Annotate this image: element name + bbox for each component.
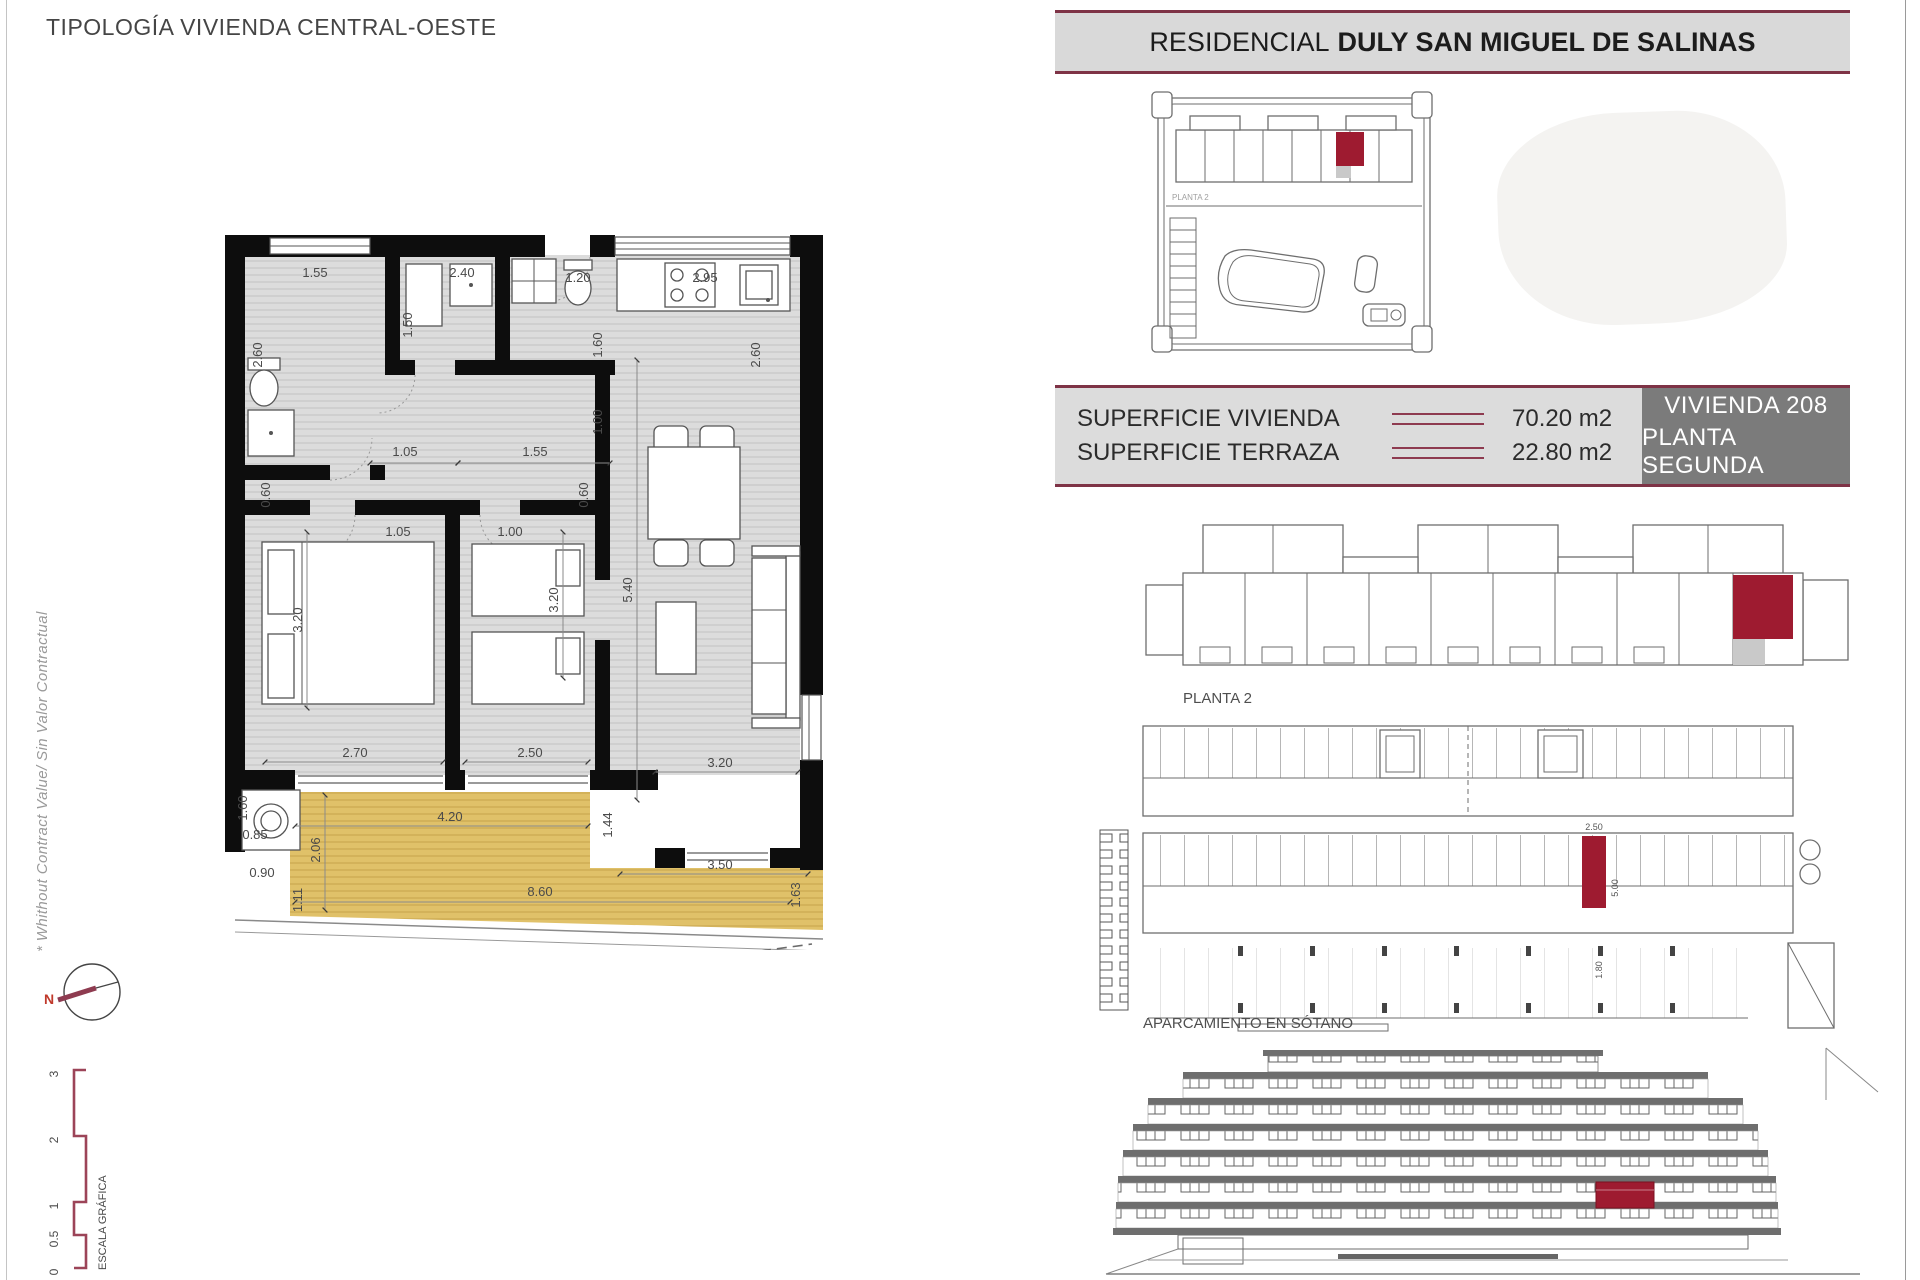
dim-label: 1.50 — [400, 312, 415, 337]
floorplan-drawing: 1.552.401.202.952.601.501.601.002.601.05… — [150, 160, 850, 950]
page-right-edge — [1905, 0, 1906, 1280]
surface-table: SUPERFICIE VIVIENDA 70.20 m2 SUPERFICIE … — [1055, 385, 1850, 487]
dim-label: 1.60 — [235, 795, 250, 820]
dim-label: 2.70 — [342, 745, 367, 760]
dim-label: 2.06 — [308, 837, 323, 862]
surface-terraza-value: 22.80 m2 — [1512, 439, 1642, 467]
page: TIPOLOGÍA VIVIENDA CENTRAL-OESTE — [0, 0, 1920, 1280]
table-row: SUPERFICIE TERRAZA 22.80 m2 — [1077, 439, 1642, 467]
erased-logo-area — [1494, 107, 1789, 329]
dim-label: 5.40 — [620, 577, 635, 602]
table-row: SUPERFICIE VIVIENDA 70.20 m2 — [1077, 405, 1642, 433]
dim-label: 3 — [47, 1070, 61, 1077]
coffee-table — [656, 602, 696, 674]
parking-label: APARCAMIENTO EN SÓTANO — [1143, 1015, 1353, 1032]
dim-label: 1.05 — [392, 444, 417, 459]
dim-label: 0.60 — [576, 482, 591, 507]
dim-label: 1.55 — [522, 444, 547, 459]
dim-label: 1.00 — [590, 409, 605, 434]
dim-label: 3.20 — [546, 587, 561, 612]
kitchen-window — [615, 237, 790, 255]
scale-bar-label: ESCALA GRÁFICA — [96, 1175, 109, 1270]
dim-label: 2.60 — [748, 342, 763, 367]
scale-bar-line — [74, 1070, 86, 1268]
dim-label: 1 — [47, 1202, 61, 1209]
unit-id-box: VIVIENDA 208 PLANTA SEGUNDA — [1642, 388, 1850, 484]
site-plan-drawing: PLANTA 2 — [1150, 88, 1450, 368]
compass: N — [36, 950, 132, 1034]
living-window — [802, 695, 821, 760]
dim-label: 0 — [47, 1268, 61, 1275]
dim-label: 1.11 — [290, 888, 305, 912]
dim-label: 2.60 — [250, 342, 265, 367]
dim-label: 1.60 — [590, 332, 605, 357]
dim-label: 2.95 — [692, 270, 717, 285]
dim-label: 1.05 — [385, 524, 410, 539]
site-plan-tiny-label: PLANTA 2 — [1172, 193, 1209, 202]
surface-vivienda-value: 70.20 m2 — [1512, 405, 1642, 433]
page-left-edge — [6, 0, 7, 1280]
compass-north-label: N — [44, 991, 54, 1007]
surface-vivienda-label: SUPERFICIE VIVIENDA — [1077, 405, 1392, 433]
dim-label: 1.63 — [788, 882, 803, 907]
dim-label: 2 — [47, 1136, 61, 1143]
dim-label: 5.00 — [1610, 879, 1620, 897]
scale-ticks: 3210.50 — [47, 1070, 61, 1275]
parking-drawing: 2.505.001.80 APARCAMIENTO EN SÓTANO — [1088, 718, 1903, 1038]
bedroom1-bed — [262, 542, 434, 704]
unit-number: VIVIENDA 208 — [1664, 392, 1827, 420]
dim-label: 1.80 — [1594, 961, 1604, 979]
elevation-drawing — [1088, 1042, 1903, 1280]
scale-bar: 3210.50 ESCALA GRÁFICA — [28, 1058, 138, 1280]
surface-table-rows: SUPERFICIE VIVIENDA 70.20 m2 SUPERFICIE … — [1055, 388, 1642, 484]
dim-label: 3.20 — [707, 755, 732, 770]
planta2-highlight-unit — [1733, 575, 1793, 639]
planta2-drawing: PLANTA 2 — [1088, 515, 1903, 715]
site-plan-highlight-unit — [1336, 132, 1364, 166]
dim-label: 8.60 — [527, 884, 552, 899]
dim-label: 0.60 — [258, 482, 273, 507]
car — [1363, 304, 1405, 326]
leader-line — [1392, 413, 1484, 425]
compass-circle — [64, 964, 120, 1020]
kitchen-counter — [617, 259, 790, 311]
elevation-highlight-unit — [1596, 1182, 1654, 1208]
dim-label: 0.85 — [242, 827, 267, 842]
side-note: * Whithout Contract Value/ Sin Valor Con… — [34, 611, 51, 952]
sofa — [752, 546, 800, 728]
dim-label: 0.5 — [47, 1230, 61, 1247]
dim-label: 3.20 — [290, 607, 305, 632]
planta2-label: PLANTA 2 — [1183, 690, 1252, 707]
dim-label: 3.50 — [707, 857, 732, 872]
parking-highlight-stall — [1582, 836, 1606, 908]
dim-label: 0.90 — [249, 865, 274, 880]
header-name: DULY SAN MIGUEL DE SALINAS — [1337, 27, 1755, 58]
page-title: TIPOLOGÍA VIVIENDA CENTRAL-OESTE — [46, 14, 497, 41]
leader-line — [1392, 447, 1484, 459]
project-header: RESIDENCIAL DULY SAN MIGUEL DE SALINAS — [1055, 10, 1850, 74]
header-prefix: RESIDENCIAL — [1149, 27, 1329, 58]
dim-label: 4.20 — [437, 809, 462, 824]
bathroom-window — [270, 238, 370, 254]
dim-label: 1.20 — [565, 270, 590, 285]
surface-terraza-label: SUPERFICIE TERRAZA — [1077, 439, 1392, 467]
dim-label: 1.55 — [302, 265, 327, 280]
dim-label: 1.44 — [600, 812, 615, 837]
dim-label: 2.40 — [449, 265, 474, 280]
dim-label: 1.00 — [497, 524, 522, 539]
dim-label: 2.50 — [1585, 822, 1603, 832]
dim-label: 2.50 — [517, 745, 542, 760]
unit-floor: PLANTA SEGUNDA — [1642, 424, 1850, 480]
